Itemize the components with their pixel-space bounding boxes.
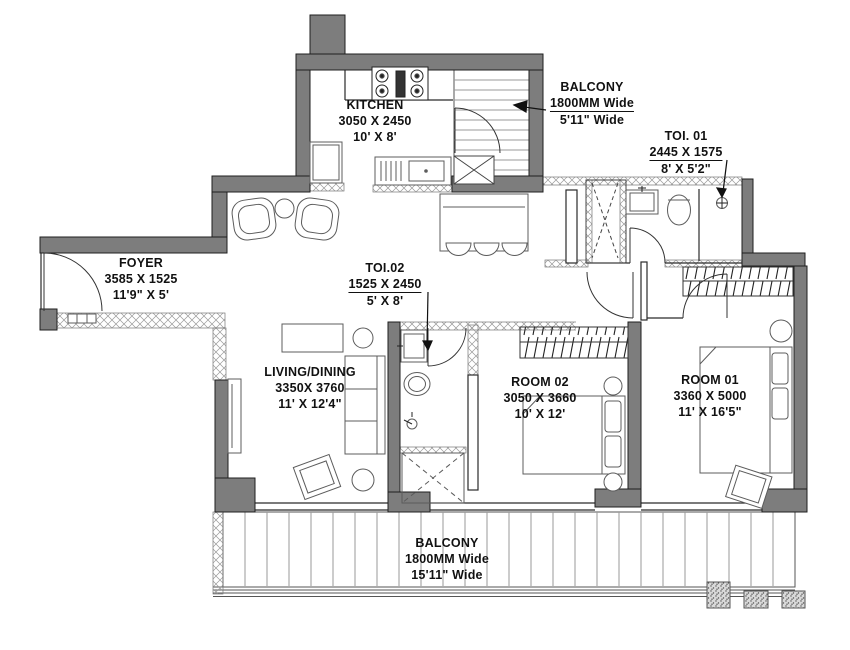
fridge [310,142,342,183]
room-label-balcony-top: BALCONY 1800MM Wide 5'11" Wide [550,79,634,128]
washbasin [397,330,427,362]
room-dim-ft: 11' X 12'4" [264,396,356,412]
shower-head [404,412,417,429]
balcony-bottom-planks [213,512,805,608]
room-dim-mm: 3360 X 5000 [673,388,746,404]
room-label-kitchen: KITCHEN 3050 X 2450 10' X 8' [338,97,411,145]
dining-table [440,194,528,251]
shower-head [717,198,728,209]
toi01-door [630,228,665,263]
pouf [293,455,340,500]
round-table [275,199,294,218]
room-name: TOI.02 [348,260,421,276]
room-dim-mm: 1525 X 2450 [348,276,421,293]
room02-door [587,272,633,318]
room-name: ROOM 02 [503,374,576,390]
room-dim-mm: 3350X 3760 [264,380,356,396]
room-name: BALCONY [550,79,634,95]
kitchen-sink [375,157,451,185]
room-label-living-dining: LIVING/DINING 3350X 3760 11' X 12'4" [264,364,356,412]
balcony-duct-box [454,156,494,184]
shoe-cabinet [68,314,96,323]
room-dim-ft: 10' X 8' [338,129,411,145]
room-label-room-01: ROOM 01 3360 X 5000 11' X 16'5" [673,372,746,420]
tv-unit [228,379,241,453]
room-name: ROOM 01 [673,372,746,388]
entrance-door [44,253,102,311]
room-name: TOI. 01 [649,128,722,144]
room-dim-mm: 1800MM Wide [405,551,489,567]
room-dim-ft: 10' X 12' [503,406,576,422]
console-table [282,324,343,352]
room-dim-mm: 3050 X 2450 [338,113,411,129]
shower-area [402,453,464,503]
side-table [353,328,373,348]
room-dim-ft: 15'11" Wide [405,567,489,583]
room-name: KITCHEN [338,97,411,113]
toi02-door [428,328,466,366]
side-table [770,320,792,342]
room-dim-mm: 3585 X 1525 [104,271,177,287]
room-name: FOYER [104,255,177,271]
room-name: LIVING/DINING [264,364,356,380]
room-dim-mm: 2445 X 1575 [649,144,722,161]
washbasin [626,186,658,214]
room-label-toi-01: TOI. 01 2445 X 1575 8' X 5'2" [649,128,722,177]
side-table [604,377,622,395]
toilet-wc [404,373,430,396]
room-dim-mm: 3050 X 3660 [503,390,576,406]
room-label-room-02: ROOM 02 3050 X 3660 10' X 12' [503,374,576,422]
toilet-wc [668,195,691,225]
room-dim-ft: 5' X 8' [348,293,421,309]
room-dim-ft: 11'9" X 5' [104,287,177,303]
room-label-balcony-bottom: BALCONY 1800MM Wide 15'11" Wide [405,535,489,583]
armchair [230,196,277,241]
dining-chairs [446,243,527,255]
room-dim-ft: 8' X 5'2" [649,161,722,177]
room-label-toi-02: TOI.02 1525 X 2450 5' X 8' [348,260,421,309]
room-dim-ft: 5'11" Wide [550,112,634,128]
armchair [293,196,340,241]
room-name: BALCONY [405,535,489,551]
floor-plan: KITCHEN 3050 X 2450 10' X 8' BALCONY 180… [0,0,850,650]
side-table [352,469,374,491]
side-table [604,473,622,491]
room-dim-mm: 1800MM Wide [550,95,634,112]
room-dim-ft: 11' X 16'5" [673,404,746,420]
stove [372,67,428,100]
room-label-foyer: FOYER 3585 X 1525 11'9" X 5' [104,255,177,303]
